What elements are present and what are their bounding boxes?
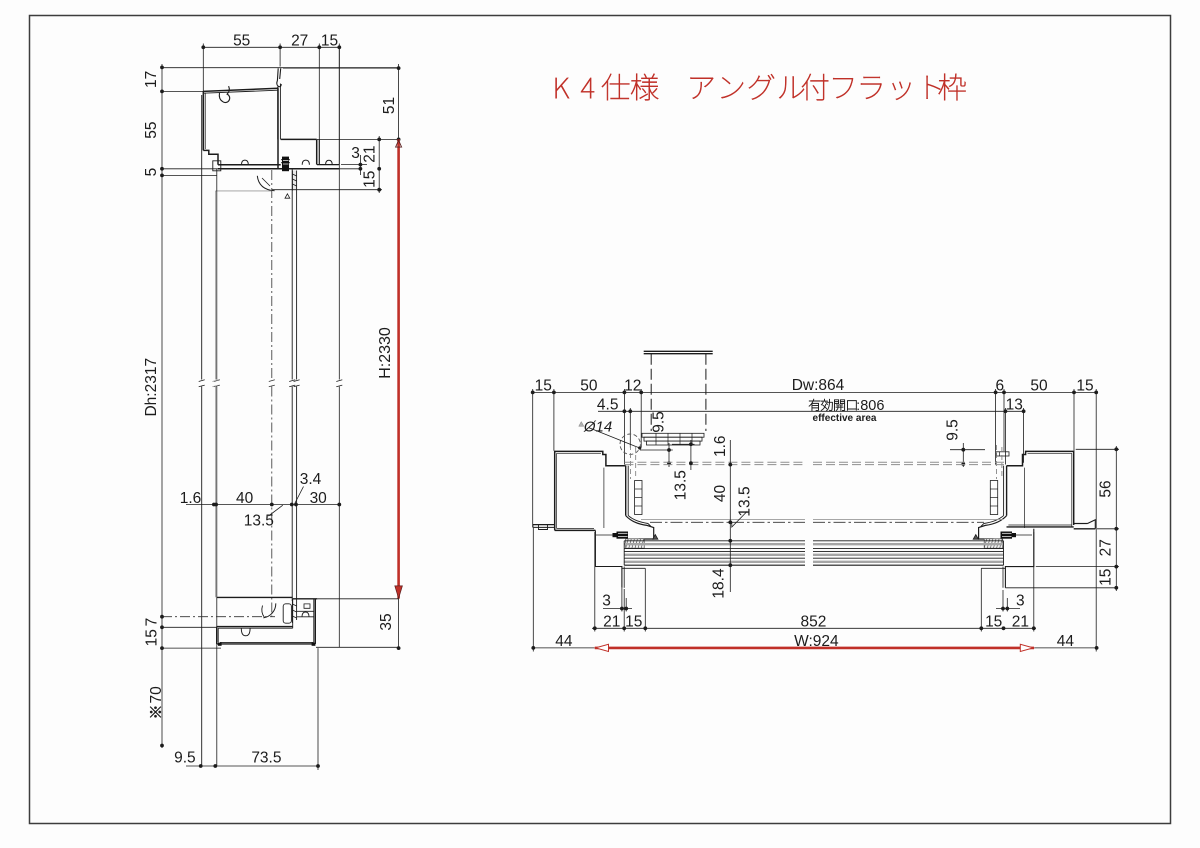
svg-text:17: 17 xyxy=(143,71,160,88)
svg-text:40: 40 xyxy=(236,490,254,507)
svg-text:51: 51 xyxy=(381,97,398,114)
svg-text:Dw:864: Dw:864 xyxy=(792,377,845,394)
svg-text:27: 27 xyxy=(1097,539,1114,556)
svg-text:4.5: 4.5 xyxy=(597,397,619,414)
svg-text:35: 35 xyxy=(378,613,395,630)
svg-text:13.5: 13.5 xyxy=(673,470,690,500)
svg-text:852: 852 xyxy=(800,614,826,631)
svg-text:15: 15 xyxy=(361,171,378,188)
svg-text:44: 44 xyxy=(1057,633,1075,650)
svg-text:5: 5 xyxy=(143,168,160,177)
svg-text:806: 806 xyxy=(860,398,884,414)
svg-text:7: 7 xyxy=(144,618,161,627)
svg-text:effective area: effective area xyxy=(813,413,877,424)
svg-text:73.5: 73.5 xyxy=(251,749,281,766)
svg-text:44: 44 xyxy=(555,633,573,650)
svg-text:15: 15 xyxy=(625,614,642,631)
svg-text:1.6: 1.6 xyxy=(712,435,729,457)
svg-text:13.5: 13.5 xyxy=(736,486,753,516)
svg-text:15: 15 xyxy=(1076,378,1093,395)
svg-text:18.4: 18.4 xyxy=(711,568,728,599)
svg-text:Ø14: Ø14 xyxy=(583,419,612,436)
svg-text:1.6: 1.6 xyxy=(180,490,202,507)
svg-text:Dh:2317: Dh:2317 xyxy=(143,358,160,417)
svg-text:15: 15 xyxy=(1097,569,1114,586)
svg-text:9.5: 9.5 xyxy=(174,749,196,766)
svg-text:21: 21 xyxy=(361,145,378,162)
svg-text:12: 12 xyxy=(624,378,641,395)
svg-text:H:2330: H:2330 xyxy=(377,327,394,379)
svg-text:13: 13 xyxy=(1006,397,1023,414)
svg-text:21: 21 xyxy=(1012,614,1029,631)
svg-text:55: 55 xyxy=(233,33,250,50)
svg-text:50: 50 xyxy=(580,378,598,395)
svg-text:3: 3 xyxy=(1016,592,1025,609)
svg-text:55: 55 xyxy=(143,121,160,138)
svg-text:9.5: 9.5 xyxy=(650,411,667,433)
svg-text:50: 50 xyxy=(1030,378,1048,395)
svg-text:70: 70 xyxy=(148,686,165,704)
svg-text:27: 27 xyxy=(291,33,308,50)
svg-text:21: 21 xyxy=(603,614,620,631)
svg-text:6: 6 xyxy=(995,378,1004,395)
svg-text:56: 56 xyxy=(1097,480,1114,497)
svg-text:15: 15 xyxy=(144,629,161,646)
svg-text:40: 40 xyxy=(712,485,729,503)
svg-text:30: 30 xyxy=(310,490,328,507)
svg-text:W:924: W:924 xyxy=(794,633,839,650)
svg-text:3: 3 xyxy=(602,592,611,609)
svg-text:15: 15 xyxy=(985,614,1002,631)
svg-text:3.4: 3.4 xyxy=(300,471,322,488)
svg-text:15: 15 xyxy=(321,33,338,50)
svg-text:3: 3 xyxy=(351,145,360,162)
svg-text:9.5: 9.5 xyxy=(945,419,962,441)
svg-text:15: 15 xyxy=(535,378,552,395)
